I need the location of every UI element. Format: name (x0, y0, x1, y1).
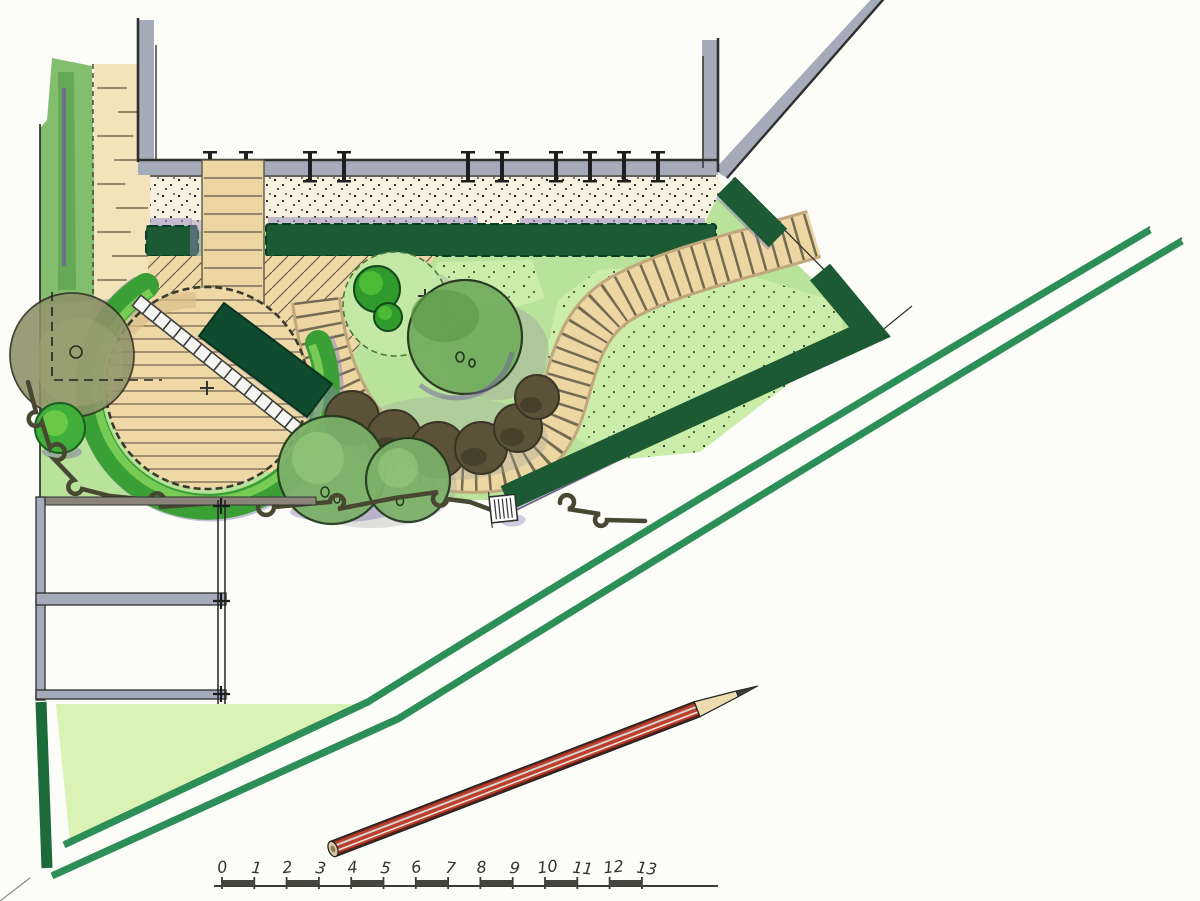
svg-text:7: 7 (445, 858, 458, 878)
hedge-left-edge (41, 702, 47, 868)
svg-text:9: 9 (509, 858, 521, 878)
pencil-guideline (0, 878, 30, 901)
scale-label: 0 (216, 857, 229, 877)
corner-ticks (213, 498, 230, 702)
svg-text:4: 4 (346, 857, 358, 877)
diagonal-wall-edge (727, 0, 888, 178)
pencil (326, 678, 761, 858)
plan-canvas: 0 1 2 3 4 5 6 7 8 9 10 11 12 13 (0, 0, 1200, 901)
svg-text:10: 10 (536, 856, 559, 877)
purple-shadow-line (62, 88, 66, 266)
svg-text:11: 11 (572, 858, 594, 879)
svg-text:3: 3 (314, 858, 327, 878)
pencil-tip (736, 683, 759, 696)
svg-text:13: 13 (636, 858, 659, 879)
house (138, 0, 890, 183)
svg-text:12: 12 (602, 856, 624, 877)
scale-bar: 0 1 2 3 4 5 6 7 8 9 10 11 12 13 (214, 856, 718, 889)
garden-plan-sketch: 0 1 2 3 4 5 6 7 8 9 10 11 12 13 (0, 0, 1200, 901)
svg-text:5: 5 (380, 858, 392, 878)
svg-text:1: 1 (251, 858, 263, 878)
house-wall-diagonal (714, 0, 890, 178)
svg-text:2: 2 (281, 857, 293, 877)
purple-shadow (150, 218, 192, 226)
pencil-wood (694, 686, 740, 716)
scale-labels: 0 1 2 3 4 5 6 7 8 9 10 11 12 13 (216, 856, 658, 879)
svg-text:8: 8 (475, 857, 487, 877)
svg-text:6: 6 (410, 857, 423, 877)
